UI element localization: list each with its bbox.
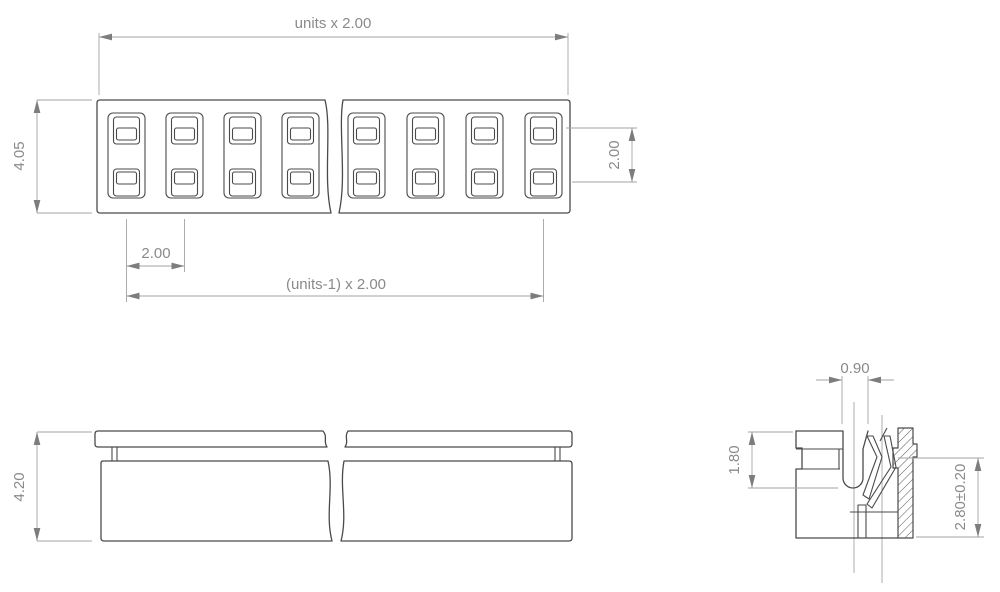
dim-cap-height-label: 1.80	[726, 445, 743, 474]
front-view-cap-left	[95, 431, 327, 447]
dim-front-height-label: 4.20	[11, 472, 28, 501]
connector-dimension-drawing: units x 2.00 4.05 2.00 (units-1) x 2.00 …	[0, 0, 1000, 592]
section-contact-stem	[858, 505, 866, 538]
dim-body-height-label: 4.05	[11, 141, 28, 170]
front-view: 4.20	[11, 431, 572, 541]
section-housing-left-edge	[796, 431, 898, 538]
top-view: units x 2.00 4.05 2.00 (units-1) x 2.00 …	[11, 15, 637, 302]
front-view-body-right	[341, 461, 572, 541]
front-view-pin-stub-left	[112, 447, 117, 461]
dim-total-width-label: units x 2.00	[295, 15, 372, 32]
dim-cap-height	[748, 432, 838, 488]
top-view-contact-positions	[108, 113, 562, 198]
dim-pin-pitch-label: 2.00	[141, 245, 170, 262]
front-view-body-left	[101, 461, 332, 541]
dim-pin-span-label: (units-1) x 2.00	[286, 276, 386, 293]
dim-row-pitch-label: 2.00	[606, 140, 623, 169]
dim-contact-point-height-label: 2.80±0.20	[952, 464, 969, 531]
front-view-pin-stub-right	[555, 447, 560, 461]
technical-drawing-page: units x 2.00 4.05 2.00 (units-1) x 2.00 …	[0, 0, 1000, 592]
section-wall-chamfer-line	[880, 428, 887, 441]
section-wall-hatched	[893, 428, 917, 538]
section-contact-blade-left	[863, 436, 882, 499]
dim-front-height	[37, 432, 92, 541]
section-view: 0.90 1.80 2.80±0.20	[726, 360, 984, 583]
section-housing-outline	[796, 431, 868, 488]
dim-slot-width-label: 0.90	[840, 360, 869, 377]
dim-body-height	[37, 100, 92, 213]
front-view-cap-right	[345, 431, 572, 447]
dim-total-width	[99, 33, 568, 95]
dim-row-pitch	[566, 128, 637, 182]
